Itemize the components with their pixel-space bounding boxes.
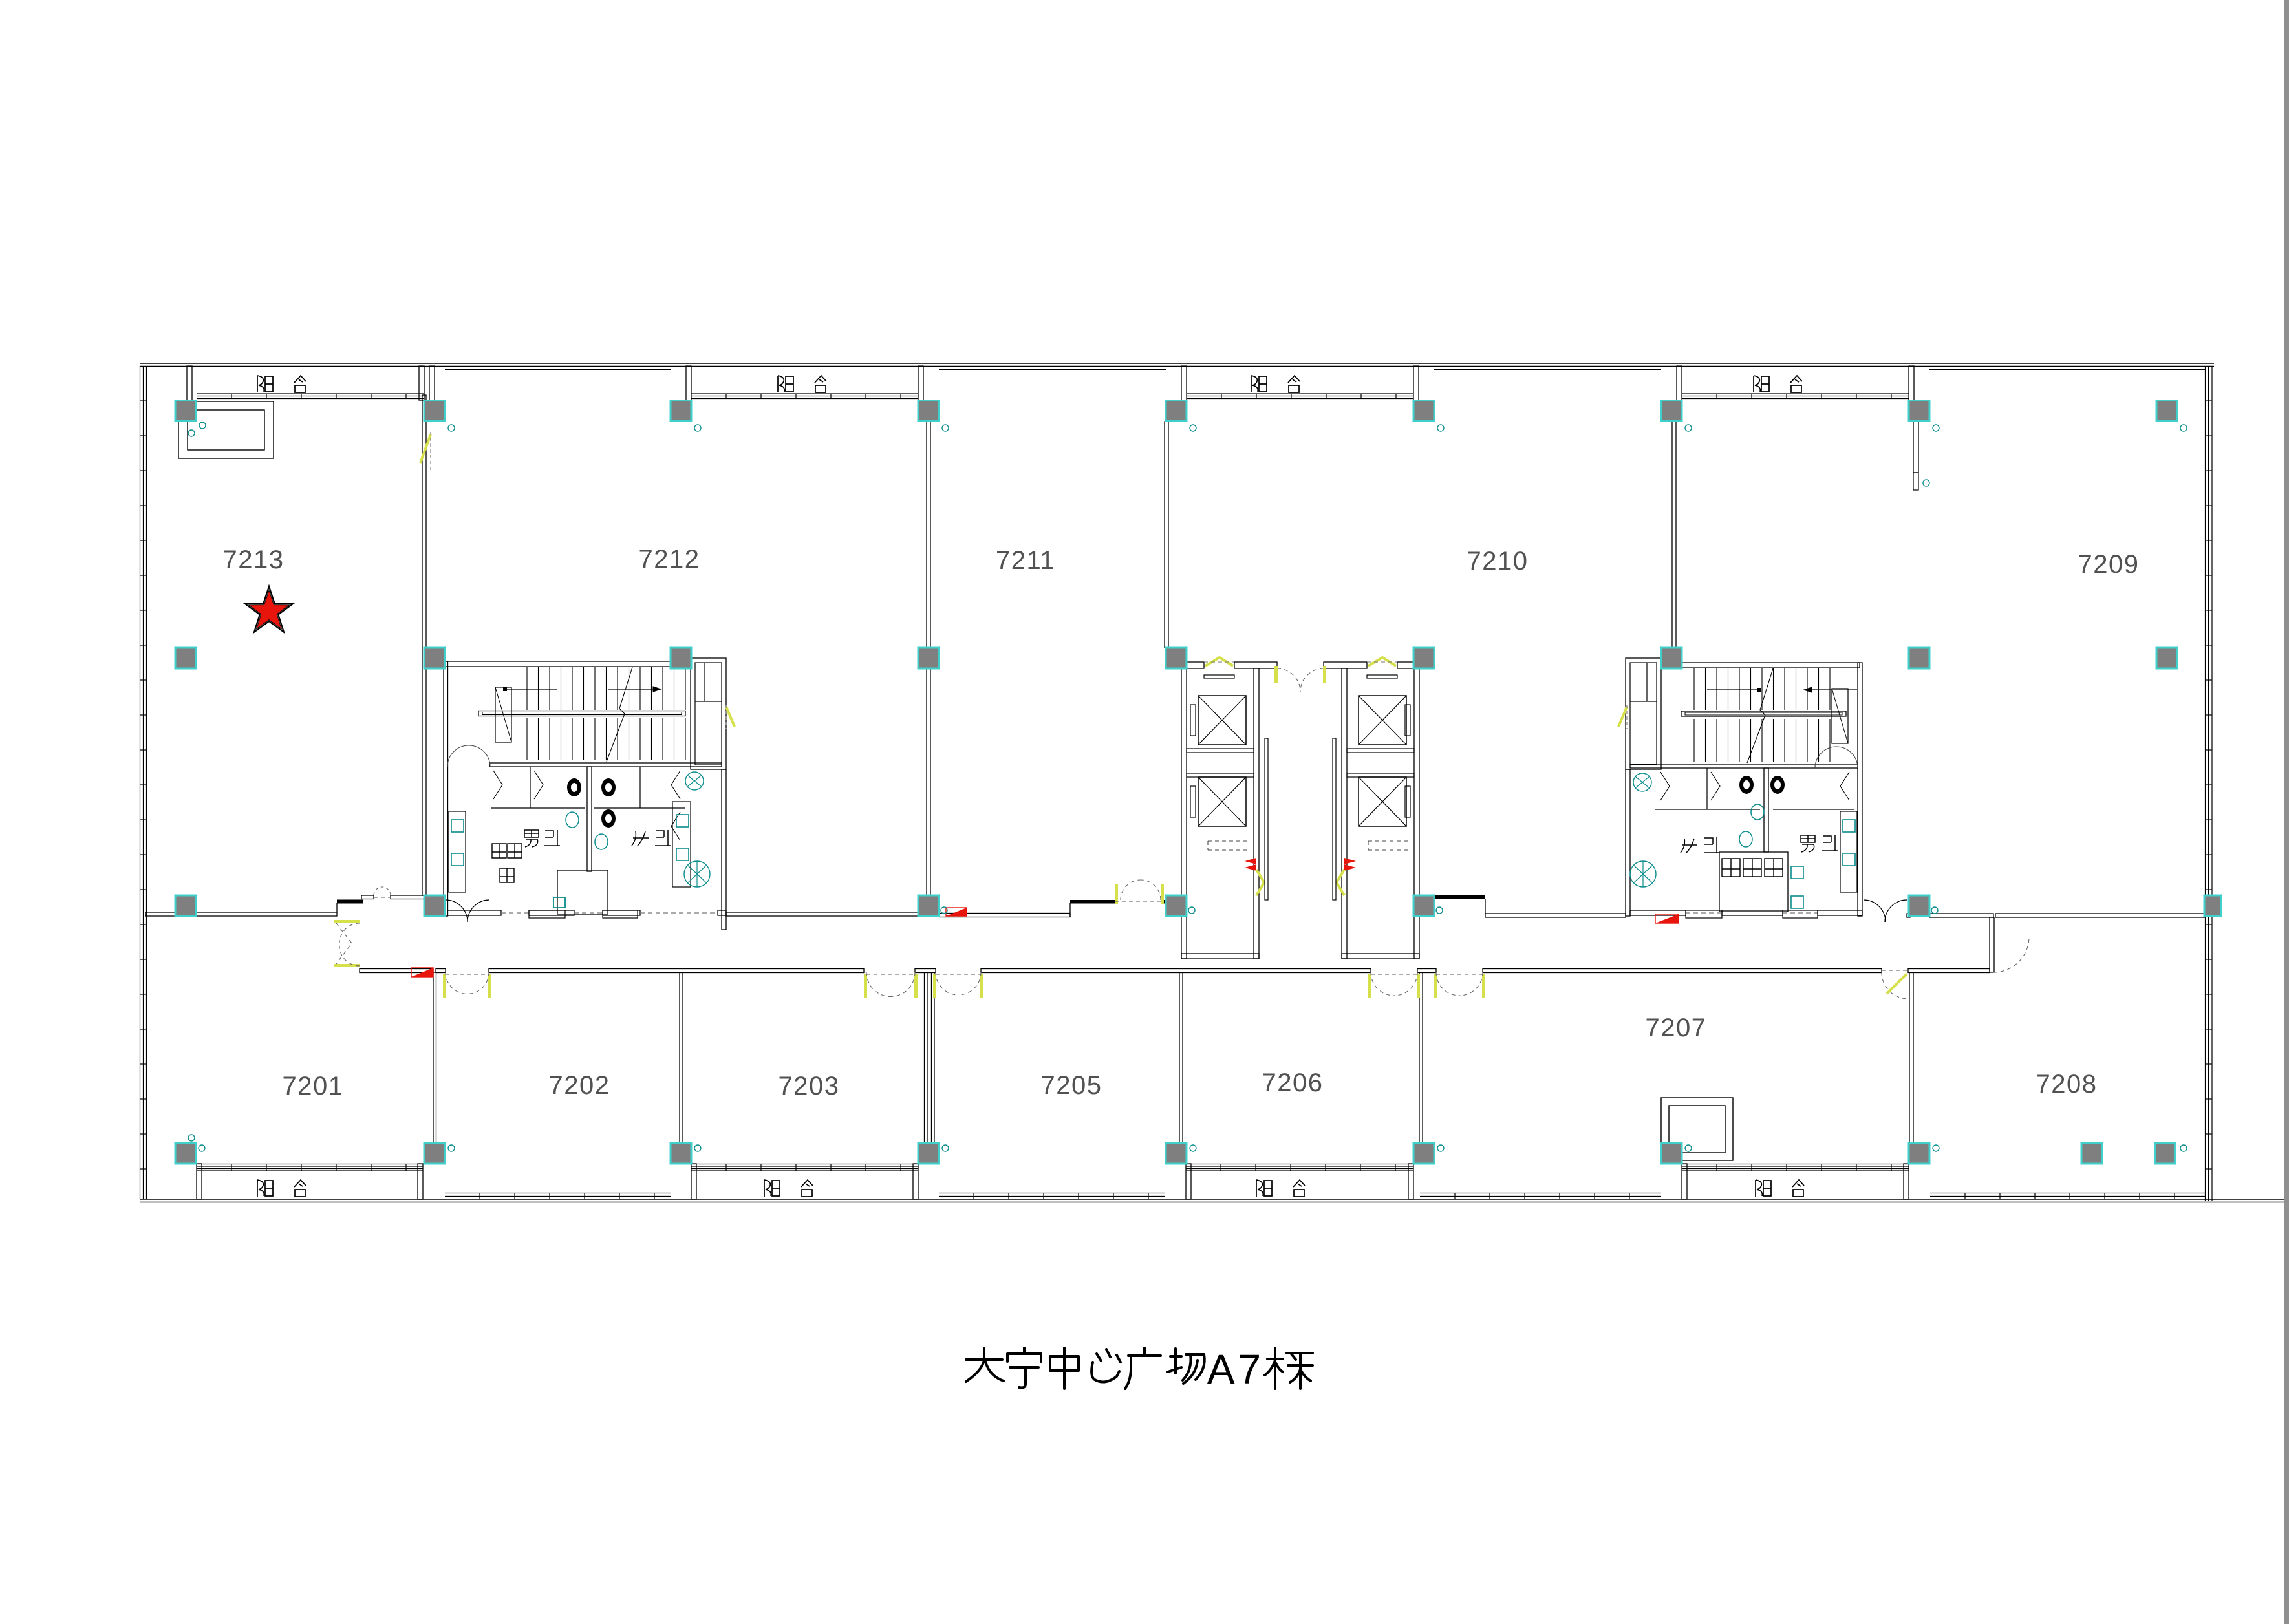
svg-text:7203: 7203	[779, 1072, 840, 1100]
svg-text:A7: A7	[1207, 1346, 1264, 1393]
svg-text:7212: 7212	[639, 545, 700, 573]
svg-text:7207: 7207	[1646, 1014, 1707, 1042]
svg-text:7205: 7205	[1041, 1071, 1102, 1100]
svg-text:7202: 7202	[549, 1071, 610, 1100]
svg-text:7201: 7201	[283, 1072, 344, 1100]
svg-text:7206: 7206	[1262, 1069, 1324, 1097]
svg-text:7210: 7210	[1467, 547, 1529, 575]
svg-text:7208: 7208	[2036, 1070, 2098, 1098]
svg-text:7213: 7213	[223, 546, 285, 574]
svg-text:7209: 7209	[2078, 550, 2140, 579]
svg-text:7211: 7211	[996, 546, 1055, 575]
